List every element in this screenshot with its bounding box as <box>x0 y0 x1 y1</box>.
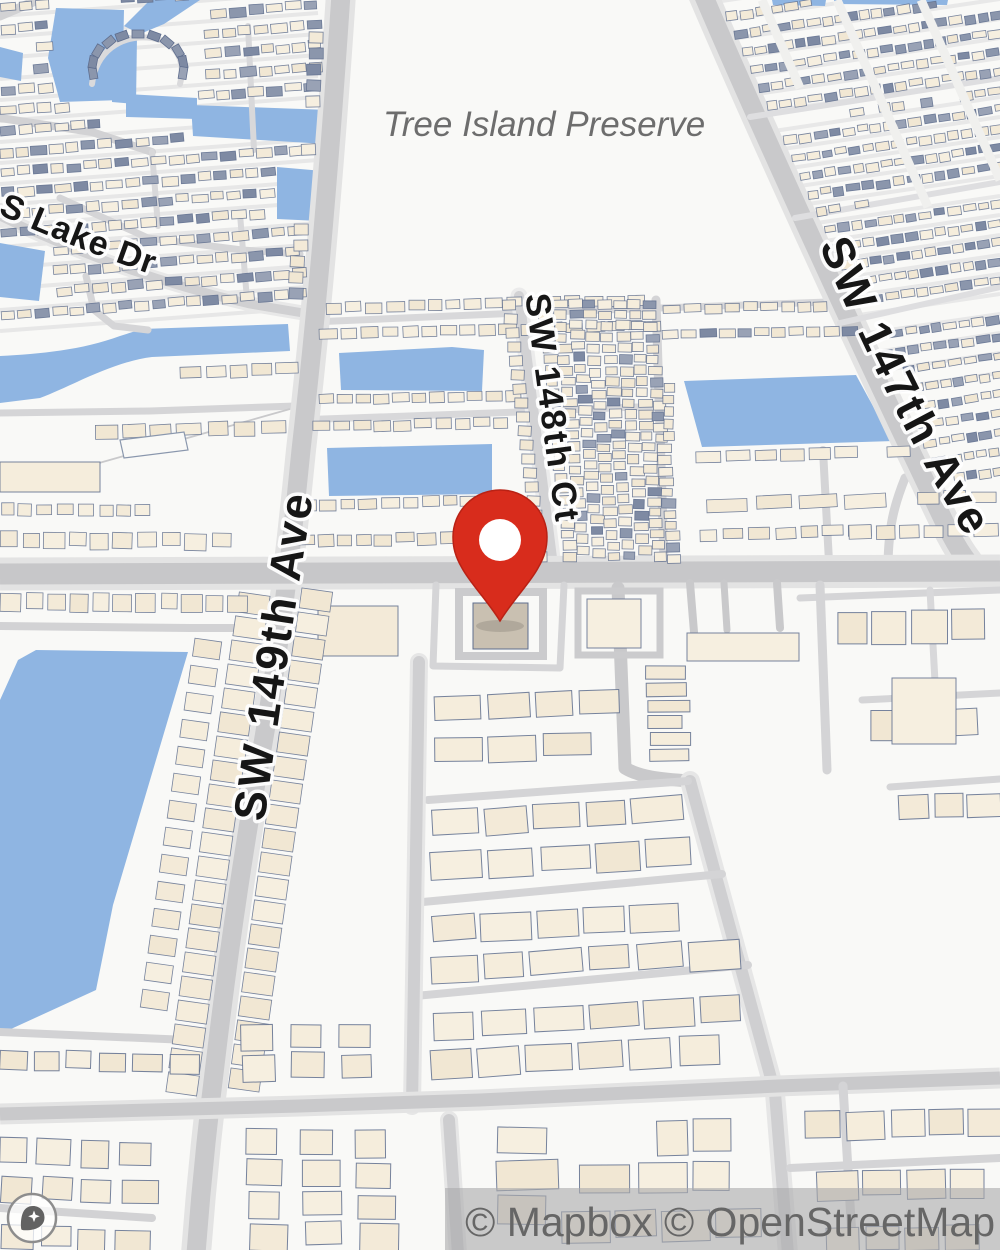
svg-text:Tree Island Preserve: Tree Island Preserve <box>383 105 705 144</box>
svg-text:© Mapbox © OpenStreetMap: © Mapbox © OpenStreetMap <box>465 1199 995 1245</box>
